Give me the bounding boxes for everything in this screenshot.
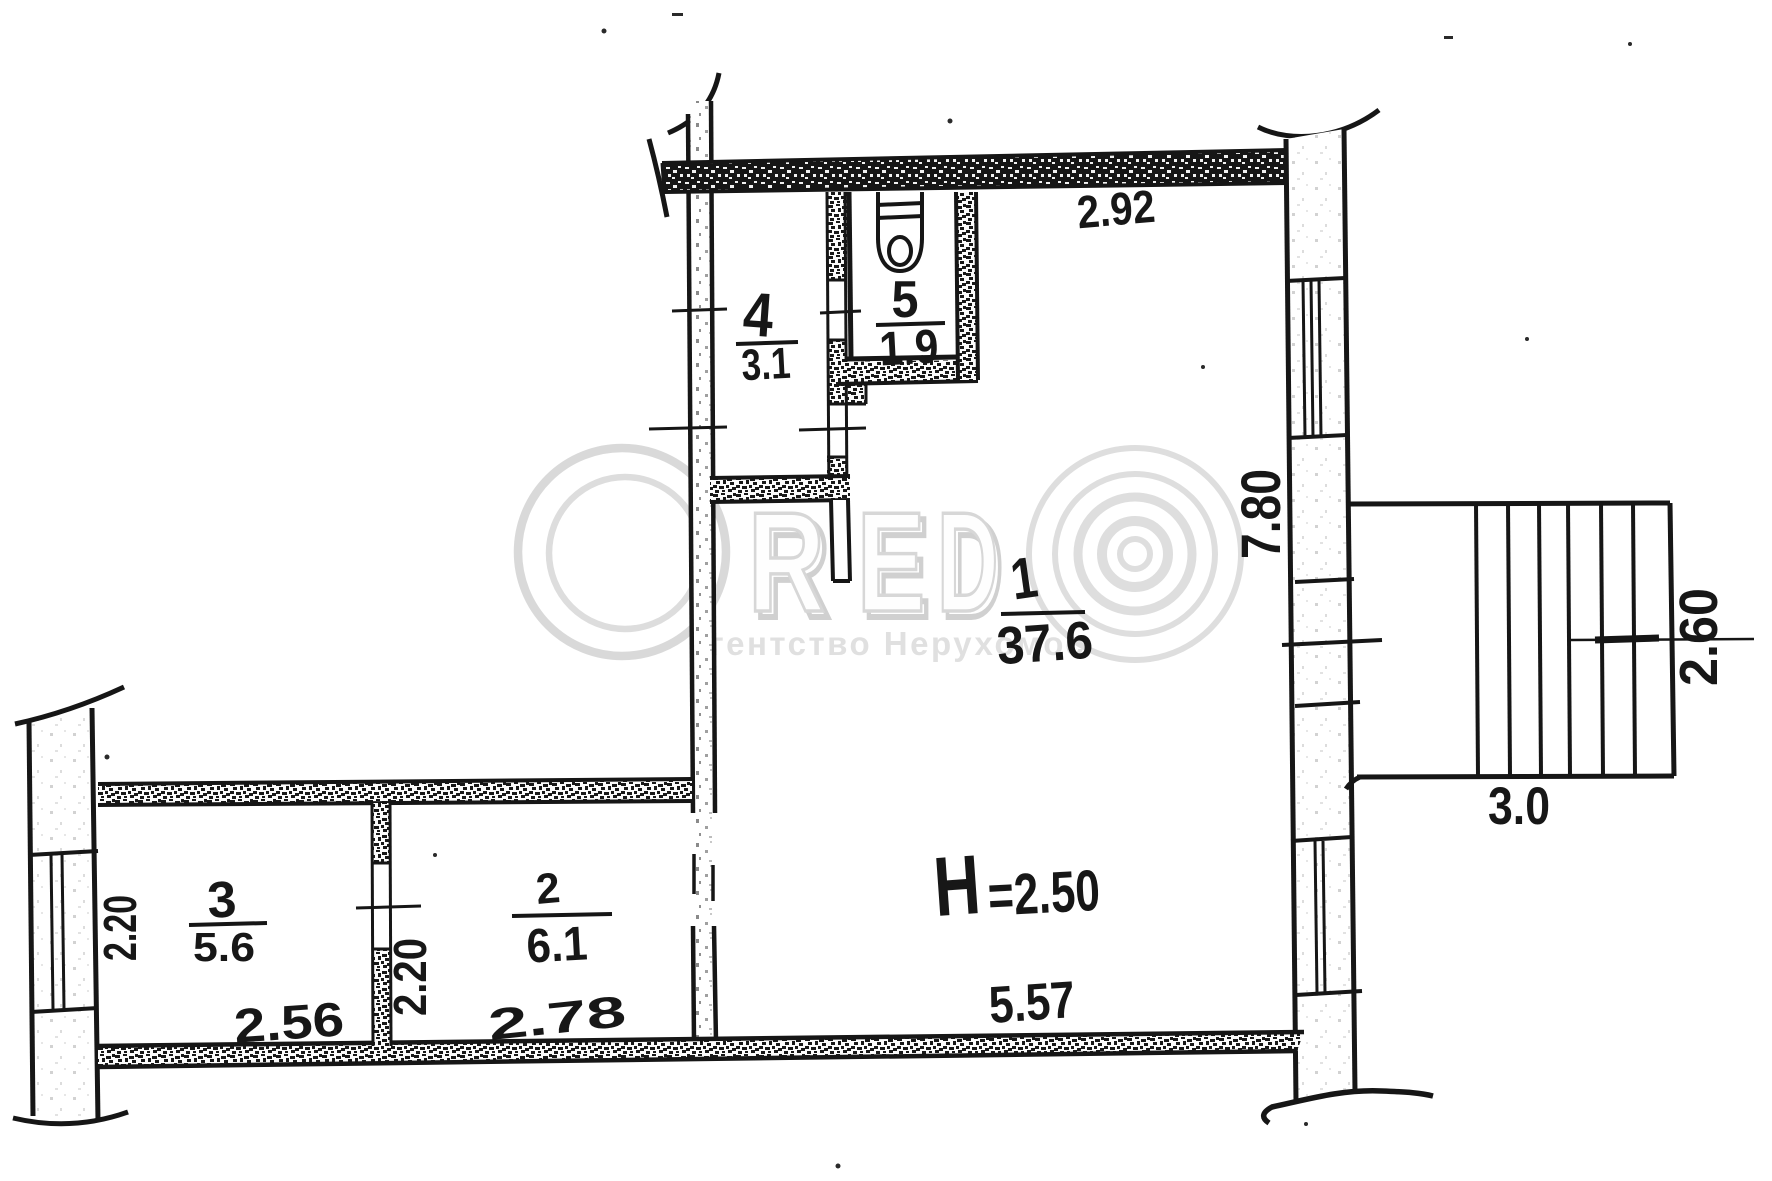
svg-text:6.1: 6.1 (525, 917, 589, 973)
svg-text:5.57: 5.57 (987, 971, 1077, 1035)
svg-text:37.6: 37.6 (995, 611, 1095, 677)
svg-text:=2.50: =2.50 (986, 858, 1101, 929)
svg-text:H: H (931, 836, 984, 934)
svg-text:5: 5 (892, 271, 919, 329)
svg-text:3.1: 3.1 (740, 339, 791, 390)
svg-text:E: E (857, 484, 925, 642)
svg-text:3: 3 (206, 870, 238, 928)
svg-text:5.6: 5.6 (193, 924, 255, 970)
svg-text:2.92: 2.92 (1075, 180, 1157, 239)
svg-text:2: 2 (534, 864, 562, 914)
svg-text:2.60: 2.60 (1669, 588, 1729, 686)
svg-text:D: D (937, 482, 999, 641)
svg-text:2.20: 2.20 (384, 938, 436, 1016)
svg-text:R: R (748, 482, 825, 642)
svg-text:1.9: 1.9 (878, 320, 940, 376)
svg-text:3.0: 3.0 (1488, 777, 1550, 836)
svg-text:2.20: 2.20 (94, 895, 146, 961)
svg-text:7.80: 7.80 (1229, 469, 1292, 559)
svg-text:2.56: 2.56 (232, 993, 345, 1054)
